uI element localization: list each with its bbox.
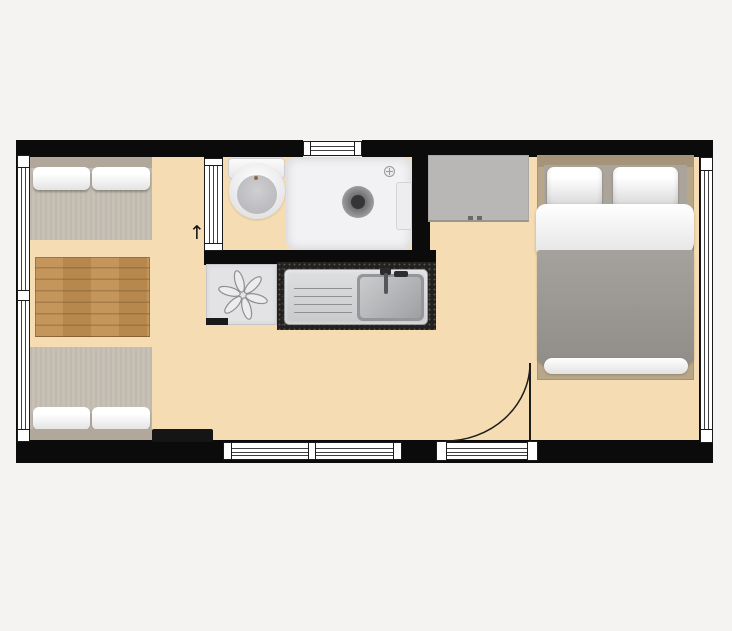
sofa-cushion xyxy=(33,407,90,430)
doormat xyxy=(152,429,213,442)
wood-table xyxy=(35,257,150,337)
shower-drain xyxy=(351,195,365,209)
fan-unit-latch xyxy=(206,318,228,325)
sofa-cushion xyxy=(33,167,90,190)
fan-icon xyxy=(207,265,278,326)
cooktop-fan-unit xyxy=(206,264,277,325)
soap-dispenser xyxy=(394,271,408,277)
sink-basin-inner xyxy=(360,277,421,318)
toilet-drain-dot xyxy=(254,176,258,180)
faucet-spout xyxy=(384,273,388,294)
sofa-bottom-backrest xyxy=(30,429,152,440)
direction-arrow: ↑ xyxy=(189,221,205,245)
wardrobe xyxy=(428,155,529,222)
wall-top xyxy=(16,140,303,157)
sofa-cushion xyxy=(92,167,150,190)
top-wall-window xyxy=(303,141,362,156)
sink-drainer-lines xyxy=(294,281,352,315)
bathroom-sliding-door xyxy=(204,158,223,251)
entry-door-sill xyxy=(436,442,538,460)
bed-foot-linen xyxy=(544,358,688,374)
sofa-cushion xyxy=(92,407,150,430)
left-wall-window xyxy=(17,155,30,442)
shower-valve-icon xyxy=(384,166,395,177)
floor-plan-canvas: ↑ xyxy=(0,0,732,631)
right-wall-window xyxy=(700,157,713,443)
bottom-wall-window xyxy=(223,442,402,460)
toilet-bowl-inner xyxy=(237,175,277,214)
bed-folded-sheet xyxy=(536,204,694,256)
bed-duvet xyxy=(537,250,694,364)
shower-seat xyxy=(396,182,412,230)
